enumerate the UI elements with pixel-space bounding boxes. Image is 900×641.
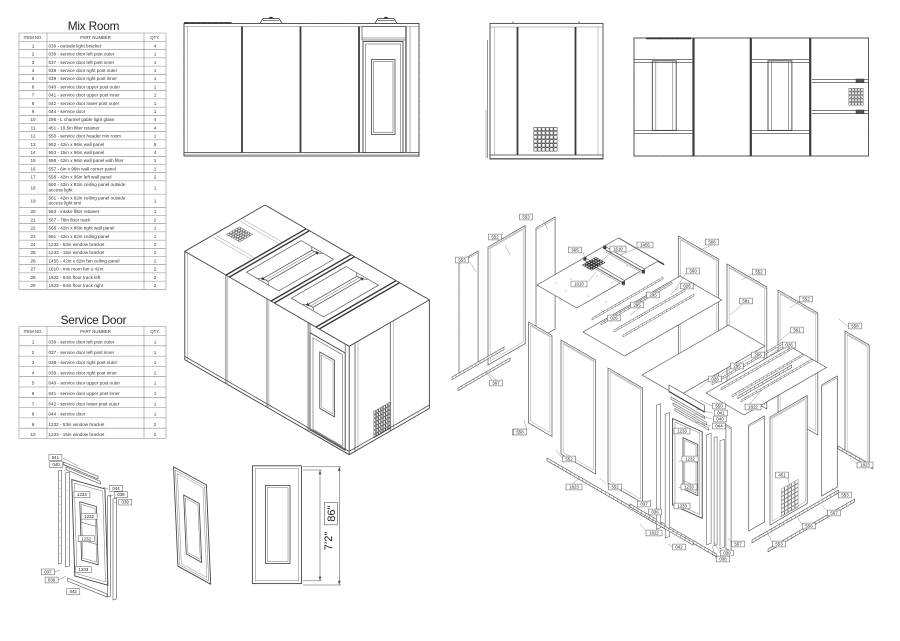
svg-text:1: 1 [154, 84, 157, 89]
svg-text:565: 565 [571, 248, 579, 253]
svg-text:23: 23 [30, 234, 36, 239]
svg-text:1455: 1455 [640, 243, 650, 248]
svg-text:11: 11 [31, 125, 36, 130]
svg-text:PART NUMBER: PART NUMBER [80, 35, 111, 40]
svg-text:1233: 1233 [677, 504, 687, 509]
svg-text:552: 552 [491, 235, 499, 240]
svg-text:29: 29 [30, 283, 36, 288]
svg-text:26: 26 [30, 258, 36, 263]
svg-text:1823: 1823 [860, 463, 870, 468]
svg-text:038 - service door right post: 038 - service door right post outer [49, 68, 118, 73]
svg-text:8: 8 [32, 412, 35, 417]
svg-text:038: 038 [719, 557, 727, 562]
svg-text:039: 039 [723, 551, 731, 556]
svg-text:1233: 1233 [677, 429, 687, 434]
svg-text:040: 040 [52, 462, 60, 467]
svg-text:2: 2 [32, 350, 35, 355]
svg-text:2: 2 [154, 242, 157, 247]
svg-text:041 - service door upper post: 041 - service door upper post inner [49, 391, 121, 396]
svg-text:2: 2 [154, 422, 157, 427]
svg-text:19: 19 [30, 199, 36, 204]
svg-text:1: 1 [154, 360, 157, 365]
svg-text:1: 1 [154, 370, 157, 375]
svg-text:037: 037 [640, 502, 648, 507]
svg-text:1: 1 [154, 412, 157, 417]
svg-text:557 - 6in x 96in wall corner p: 557 - 6in x 96in wall corner panel [49, 166, 116, 171]
svg-text:28: 28 [30, 275, 36, 280]
svg-text:026: 026 [683, 284, 691, 289]
svg-text:20: 20 [30, 209, 36, 214]
svg-text:1233 - 15in window bracket: 1233 - 15in window bracket [49, 250, 106, 255]
svg-text:553: 553 [841, 493, 849, 498]
svg-text:568 - 42in x 96in right wall p: 568 - 42in x 96in right wall panel [49, 226, 115, 231]
svg-text:2: 2 [154, 283, 157, 288]
svg-text:026: 026 [711, 377, 719, 382]
svg-text:1: 1 [154, 158, 157, 163]
svg-text:1: 1 [154, 76, 157, 81]
svg-text:1233: 1233 [684, 485, 694, 490]
svg-text:QTY.: QTY. [150, 35, 159, 40]
svg-text:036: 036 [48, 578, 56, 583]
svg-text:ITEM NO.: ITEM NO. [23, 35, 42, 40]
svg-text:556: 556 [805, 524, 813, 529]
svg-text:12: 12 [30, 134, 36, 139]
svg-text:042: 042 [675, 545, 683, 550]
svg-text:1610 - mix room fan u 42in: 1610 - mix room fan u 42in [49, 267, 104, 272]
svg-text:557: 557 [734, 542, 742, 547]
svg-text:1: 1 [154, 93, 157, 98]
svg-text:access light: access light [49, 188, 74, 193]
svg-text:567 - 78in floor track: 567 - 78in floor track [49, 217, 92, 222]
svg-text:1232: 1232 [81, 536, 91, 541]
svg-text:86": 86" [326, 506, 338, 522]
svg-text:21: 21 [30, 217, 36, 222]
svg-text:1: 1 [154, 258, 157, 263]
svg-text:561: 561 [793, 328, 801, 333]
svg-text:1232 - 53in window bracket: 1232 - 53in window bracket [49, 242, 106, 247]
svg-text:13: 13 [30, 142, 36, 147]
svg-text:568: 568 [708, 240, 716, 245]
svg-text:039 - service door right post: 039 - service door right post inner [49, 370, 118, 375]
svg-text:27: 27 [30, 267, 36, 272]
svg-text:4: 4 [32, 68, 35, 73]
svg-text:6: 6 [32, 84, 35, 89]
svg-text:10: 10 [30, 117, 36, 122]
svg-text:039: 039 [122, 500, 130, 505]
svg-text:553: 553 [775, 542, 783, 547]
svg-text:7: 7 [32, 401, 35, 406]
svg-text:4: 4 [154, 43, 157, 48]
svg-text:041: 041 [717, 411, 725, 416]
svg-text:2: 2 [154, 432, 157, 437]
svg-text:1232: 1232 [685, 457, 695, 462]
svg-text:3: 3 [32, 360, 35, 365]
svg-text:552: 552 [755, 270, 763, 275]
svg-text:1: 1 [154, 101, 157, 106]
svg-text:14: 14 [30, 150, 36, 155]
svg-text:044 - service door: 044 - service door [49, 109, 86, 114]
svg-text:1: 1 [154, 166, 157, 171]
svg-text:access light sml: access light sml [49, 201, 81, 206]
svg-text:1: 1 [154, 226, 157, 231]
svg-text:15: 15 [30, 158, 36, 163]
svg-text:561 - 42in x 82in ceiling pane: 561 - 42in x 82in ceiling panel outside [49, 195, 126, 200]
svg-text:295: 295 [649, 293, 657, 298]
svg-text:1233 - 15in window bracket: 1233 - 15in window bracket [49, 432, 106, 437]
svg-text:553 - 15in x 96in wall panel: 553 - 15in x 96in wall panel [49, 150, 105, 155]
svg-text:18: 18 [30, 185, 36, 190]
svg-text:039 - service door right post: 039 - service door right post inner [49, 76, 118, 81]
svg-text:026: 026 [785, 343, 793, 348]
svg-text:451: 451 [778, 473, 786, 478]
svg-text:1: 1 [154, 52, 157, 57]
svg-text:2: 2 [32, 52, 35, 57]
svg-text:PART NUMBER: PART NUMBER [80, 329, 111, 334]
svg-text:1: 1 [154, 234, 157, 239]
svg-text:295 - L channel gable light gl: 295 - L channel gable light glass [49, 117, 115, 122]
svg-text:1: 1 [154, 209, 157, 214]
svg-text:10: 10 [30, 432, 36, 437]
svg-text:1232: 1232 [84, 514, 94, 519]
svg-text:1: 1 [154, 60, 157, 65]
svg-text:552: 552 [802, 297, 810, 302]
svg-text:2: 2 [154, 217, 157, 222]
svg-text:037 - service door left post i: 037 - service door left post inner [49, 350, 115, 355]
svg-text:5: 5 [154, 142, 157, 147]
svg-text:040 - service door upper post: 040 - service door upper post outer [49, 84, 121, 89]
svg-text:036: 036 [651, 510, 659, 515]
svg-text:040 - service door upper post: 040 - service door upper post outer [49, 381, 121, 386]
svg-text:036 - service door left post o: 036 - service door left post outer [49, 52, 115, 57]
svg-text:5: 5 [32, 76, 35, 81]
svg-text:9: 9 [32, 422, 35, 427]
svg-text:1232 - 53in window bracket: 1232 - 53in window bracket [49, 422, 106, 427]
svg-text:044: 044 [112, 486, 120, 491]
svg-text:041 - service door upper post: 041 - service door upper post inner [49, 93, 121, 98]
svg-text:552 - 42in x 96in wall panel: 552 - 42in x 96in wall panel [49, 142, 105, 147]
svg-text:1: 1 [32, 340, 35, 345]
svg-text:3: 3 [32, 60, 35, 65]
svg-text:038 - service door right post: 038 - service door right post outer [49, 360, 118, 365]
svg-text:567: 567 [492, 381, 500, 386]
svg-text:5: 5 [32, 381, 35, 386]
svg-text:563 - intake filter retainer: 563 - intake filter retainer [49, 209, 100, 214]
svg-text:1: 1 [154, 391, 157, 396]
svg-text:026: 026 [610, 316, 618, 321]
svg-text:1233: 1233 [79, 567, 89, 572]
svg-text:042 - service door lower post: 042 - service door lower post outer [49, 101, 120, 106]
svg-text:558 - 42in x 96in left wall pa: 558 - 42in x 96in left wall panel [49, 175, 112, 180]
svg-text:550 - service door header mix: 550 - service door header mix room [49, 134, 122, 139]
svg-text:567: 567 [830, 511, 838, 516]
svg-text:041: 041 [52, 455, 60, 460]
svg-text:1: 1 [154, 199, 157, 204]
svg-text:040: 040 [716, 417, 724, 422]
svg-text:7’2": 7’2" [323, 532, 335, 551]
svg-text:1610: 1610 [613, 247, 623, 252]
svg-text:16: 16 [30, 166, 36, 171]
svg-text:7: 7 [32, 93, 35, 98]
svg-text:1: 1 [154, 340, 157, 345]
svg-text:037 - service door left post i: 037 - service door left post inner [49, 60, 115, 65]
svg-text:042 - service door lower post: 042 - service door lower post outer [49, 401, 120, 406]
svg-text:ITEM NO.: ITEM NO. [23, 329, 42, 334]
svg-text:558: 558 [516, 430, 524, 435]
svg-text:25: 25 [30, 250, 36, 255]
svg-text:1: 1 [154, 134, 157, 139]
svg-text:1: 1 [154, 401, 157, 406]
svg-text:17: 17 [30, 175, 36, 180]
svg-text:556 - 42in x 96in wall panel w: 556 - 42in x 96in wall panel with filter [49, 158, 125, 163]
svg-text:552: 552 [611, 485, 619, 490]
svg-text:1: 1 [154, 109, 157, 114]
svg-text:553: 553 [522, 215, 530, 220]
svg-text:1822 - 84in floor track left: 1822 - 84in floor track left [49, 275, 102, 280]
svg-text:6: 6 [32, 391, 35, 396]
svg-text:1822: 1822 [649, 531, 659, 536]
svg-text:1823 - 84in floor track right: 1823 - 84in floor track right [49, 283, 104, 288]
svg-text:295: 295 [754, 353, 762, 358]
svg-text:560 - 42in x 82in ceiling pane: 560 - 42in x 82in ceiling panel outside [49, 182, 126, 187]
svg-text:552: 552 [565, 457, 573, 462]
svg-text:24: 24 [30, 242, 36, 247]
svg-text:044 - service door: 044 - service door [49, 412, 86, 417]
svg-text:4: 4 [32, 370, 35, 375]
svg-text:295: 295 [633, 303, 641, 308]
svg-text:2: 2 [154, 275, 157, 280]
svg-text:1: 1 [154, 381, 157, 386]
svg-text:QTY.: QTY. [150, 329, 159, 334]
svg-text:1455 - 42in x 82in fan ceiling: 1455 - 42in x 82in fan ceiling panel [49, 258, 120, 263]
svg-text:1: 1 [32, 43, 35, 48]
svg-text:037: 037 [44, 570, 52, 575]
svg-text:1233: 1233 [77, 492, 87, 497]
svg-text:1: 1 [154, 350, 157, 355]
svg-text:1822: 1822 [748, 405, 758, 410]
svg-text:451 - 19.5in filter retainer: 451 - 19.5in filter retainer [49, 125, 101, 130]
svg-text:044: 044 [715, 424, 723, 429]
svg-text:558: 558 [851, 324, 859, 329]
svg-text:1610: 1610 [574, 282, 584, 287]
svg-text:042: 042 [70, 589, 78, 594]
svg-text:22: 22 [30, 226, 36, 231]
svg-text:2: 2 [154, 175, 157, 180]
svg-text:581 - 42in x 82in ceiling pane: 581 - 42in x 82in ceiling panel [49, 234, 110, 239]
svg-text:4: 4 [154, 117, 157, 122]
svg-text:1: 1 [154, 185, 157, 190]
svg-text:295: 295 [733, 364, 741, 369]
svg-text:036 - outside light bracket: 036 - outside light bracket [49, 43, 102, 48]
svg-text:4: 4 [154, 150, 157, 155]
svg-text:553: 553 [458, 258, 466, 263]
svg-text:2: 2 [154, 250, 157, 255]
svg-text:9: 9 [32, 109, 35, 114]
svg-text:1823: 1823 [569, 485, 579, 490]
svg-text:4: 4 [154, 125, 157, 130]
svg-text:1: 1 [154, 68, 157, 73]
svg-text:581: 581 [742, 299, 750, 304]
svg-text:8: 8 [32, 101, 35, 106]
svg-text:2: 2 [154, 267, 157, 272]
svg-text:550: 550 [715, 404, 723, 409]
svg-text:560: 560 [689, 269, 697, 274]
svg-text:036 - service door left post o: 036 - service door left post outer [49, 340, 115, 345]
svg-text:038: 038 [117, 492, 125, 497]
